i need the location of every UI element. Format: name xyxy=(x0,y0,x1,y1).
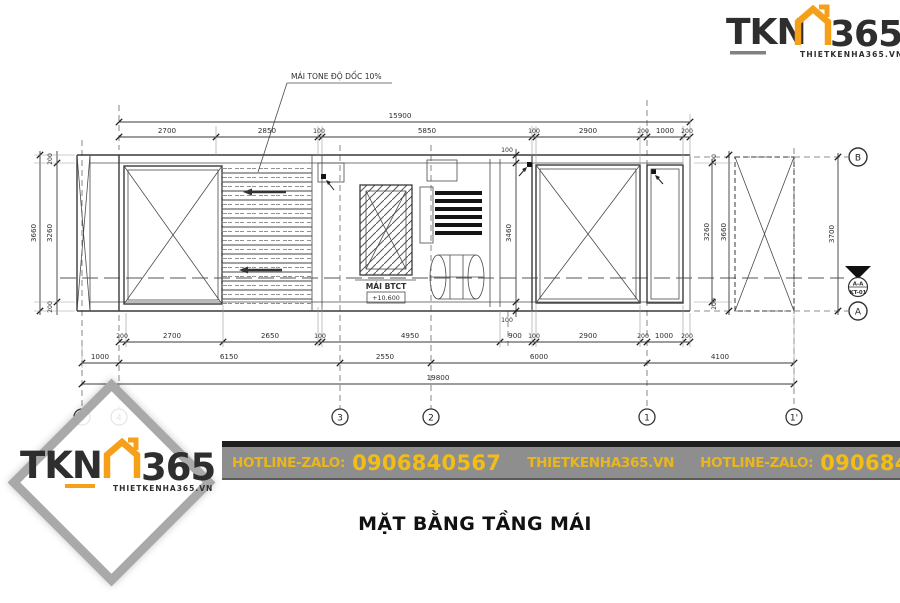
logo-domain-text: THIETKENHA365.VN xyxy=(113,484,213,493)
dim-label: 100 xyxy=(528,333,540,340)
roof-drain-marker xyxy=(651,169,663,184)
logo-brand-text: TKN xyxy=(20,444,102,487)
dim-label: 2900 xyxy=(579,126,598,135)
dim-label: 3260 xyxy=(702,222,711,241)
dim-label: 200 xyxy=(637,128,649,135)
water-tank xyxy=(430,255,484,299)
dimension-ticks xyxy=(37,119,841,387)
hotline-label: HOTLINE-ZALO: xyxy=(232,455,345,471)
axis-bubble-B: B xyxy=(849,148,867,166)
dim-label: 3460 xyxy=(504,223,513,242)
dim-label: 3660 xyxy=(719,222,728,241)
dim-label: 2700 xyxy=(158,126,177,135)
left-canopy-strip xyxy=(77,155,90,311)
dim-label: 200 xyxy=(681,333,693,340)
dim-label: 3260 xyxy=(45,223,54,242)
svg-text:1: 1 xyxy=(644,414,650,424)
neighbor-block-dashed xyxy=(735,157,794,311)
hotline-label-2: HOTLINE-ZALO: xyxy=(700,455,813,471)
hotline-phone: 0906840567 xyxy=(352,451,501,475)
dim-label: 200 xyxy=(711,154,718,166)
svg-text:2: 2 xyxy=(428,414,434,424)
slab-level: +10.600 xyxy=(372,294,400,302)
axis-bubble-1: 1 xyxy=(639,409,655,425)
dim-label: 200 xyxy=(681,128,693,135)
dim-label: 1000 xyxy=(655,331,674,340)
dim-label: 2650 xyxy=(261,331,280,340)
dim-label: 100 xyxy=(501,147,513,154)
dim-label: 2550 xyxy=(376,352,395,361)
left-void-x xyxy=(124,166,222,304)
banner-body: HOTLINE-ZALO: 0906840567 THIETKENHA365.V… xyxy=(222,447,900,480)
dim-label: 100 xyxy=(501,317,513,324)
dimension-lines xyxy=(40,122,838,384)
svg-text:B: B xyxy=(855,154,861,164)
dim-label: 15900 xyxy=(389,111,412,120)
louver-bars xyxy=(420,187,482,243)
website-label: THIETKENHA365.VN xyxy=(527,455,674,471)
section-marker: A-A KT-01 xyxy=(845,266,871,297)
dim-label: 2850 xyxy=(258,126,277,135)
dim-label: 200 xyxy=(711,298,718,310)
axis-bubble-3: 3 xyxy=(332,409,348,425)
dim-label: 200 xyxy=(637,333,649,340)
brand-logo-top: TKN 365 THIETKENHA365.VN xyxy=(698,4,898,60)
logo-underline-bar xyxy=(65,484,95,488)
logo-underline-bar xyxy=(730,51,766,55)
rc-slab-skylight: MÁI BTCT +10.600 xyxy=(355,185,416,303)
slab-label: MÁI BTCT xyxy=(366,282,407,291)
dim-label: 6150 xyxy=(220,352,239,361)
hotline-phone-2: 0906840567 xyxy=(820,451,900,475)
dim-label: 2700 xyxy=(163,331,182,340)
dim-label: 1000 xyxy=(656,126,675,135)
dim-label: 200 xyxy=(116,333,128,340)
svg-text:A: A xyxy=(855,308,862,318)
right-void-x xyxy=(536,165,640,303)
right-narrow-panel xyxy=(647,165,683,303)
logo-domain-text: THIETKENHA365.VN xyxy=(800,50,900,59)
sheet-title: MẶT BẰNG TẦNG MÁI xyxy=(0,513,900,535)
axis-bubble-1p: 1' xyxy=(786,409,802,425)
logo-suffix-text: 365 xyxy=(830,14,900,55)
svg-text:1': 1' xyxy=(790,414,798,424)
dim-label: 900 xyxy=(508,331,522,340)
hotline-banner: HOTLINE-ZALO: 0906840567 THIETKENHA365.V… xyxy=(222,441,900,480)
dim-label: 100 xyxy=(313,128,325,135)
roof-drain-marker xyxy=(519,162,532,176)
logo-suffix-text: 365 xyxy=(141,446,215,489)
logo-brand-text: TKN xyxy=(726,12,806,53)
svg-text:KT-01: KT-01 xyxy=(850,290,867,296)
dim-label: 1000 xyxy=(91,352,110,361)
dim-label: 2900 xyxy=(579,331,598,340)
dim-label: 3660 xyxy=(29,223,38,242)
svg-text:3: 3 xyxy=(337,414,343,424)
axis-bubble-2: 2 xyxy=(423,409,439,425)
dim-label: 100 xyxy=(528,128,540,135)
dim-label: 6000 xyxy=(530,352,549,361)
dim-label: 3700 xyxy=(827,224,836,243)
axis-bubble-A: A xyxy=(849,302,867,320)
dim-label: 4100 xyxy=(711,352,730,361)
dim-label: 5850 xyxy=(418,126,437,135)
dim-label: 4950 xyxy=(401,331,420,340)
roof-note: MÁI TONE ĐỘ DỐC 10% xyxy=(258,71,392,172)
dim-label: 200 xyxy=(47,153,54,165)
tole-roof-hatch xyxy=(222,165,312,305)
dim-label: 200 xyxy=(47,301,54,313)
dim-label: 100 xyxy=(314,333,326,340)
dim-label: 19800 xyxy=(427,373,450,382)
drawing-sheet: MÁI BTCT +10.600 xyxy=(0,0,900,603)
brand-logo-watermark: TKN 365 THIETKENHA365.VN xyxy=(15,438,220,496)
roof-note-label: MÁI TONE ĐỘ DỐC 10% xyxy=(291,71,382,81)
svg-text:A-A: A-A xyxy=(853,282,864,288)
